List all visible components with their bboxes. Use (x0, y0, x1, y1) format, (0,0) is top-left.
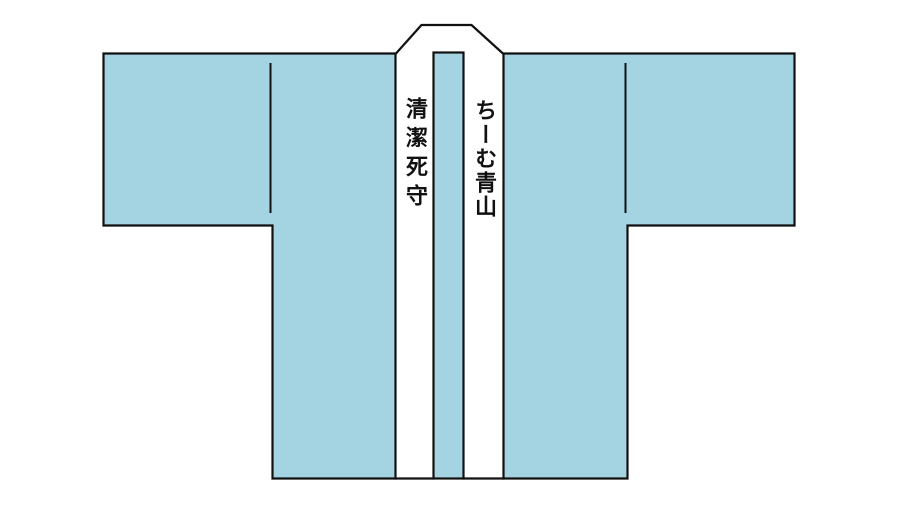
collar-left-text: 清潔死守 (403, 97, 425, 213)
right-sleeve-body-panel (504, 54, 795, 479)
happi-coat-drawing (0, 0, 898, 506)
left-sleeve-body-panel (104, 54, 396, 479)
center-back-strip (434, 53, 464, 479)
collar-neckline (396, 25, 504, 54)
collar-right-text: ちーむ青山 (472, 99, 494, 219)
happi-coat-illustration: 清潔死守 ちーむ青山 (0, 0, 898, 506)
